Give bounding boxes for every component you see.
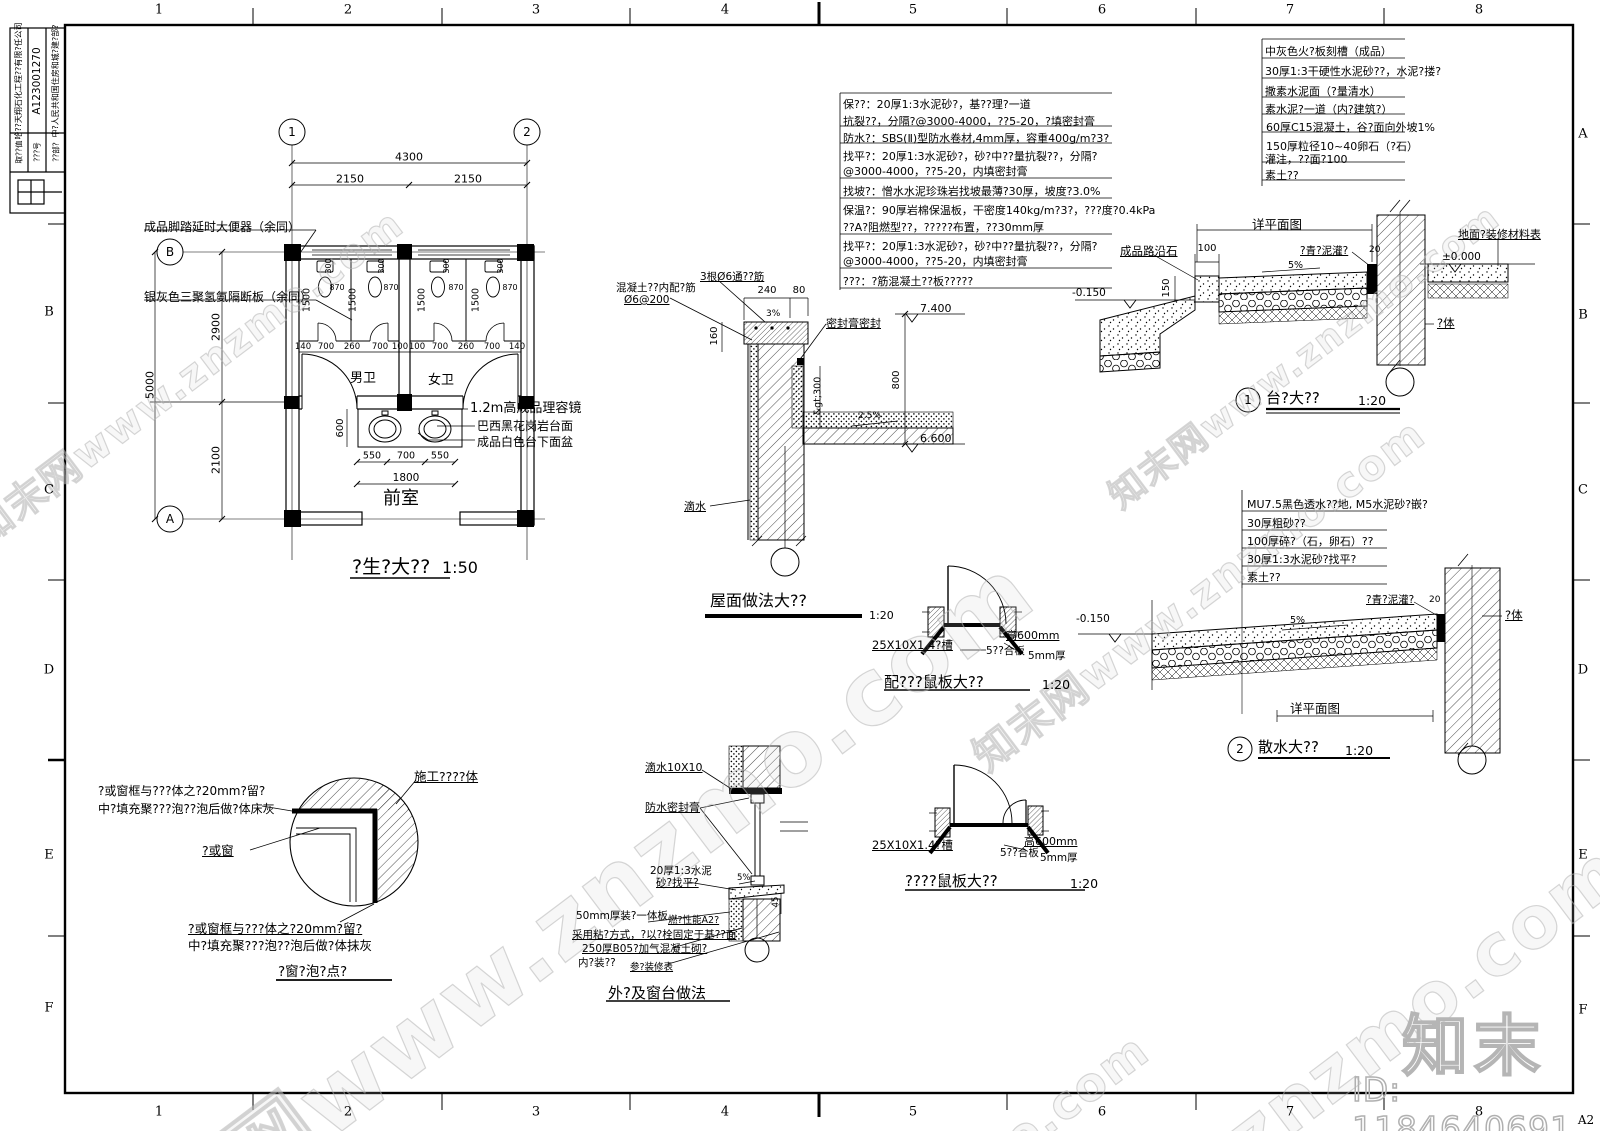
roof-slab-note2: Ø6@200 [624,295,670,306]
dim-260-a: 260 [344,343,360,352]
dim-2150-a: 2150 [336,174,364,185]
dim-2100: 2100 [211,446,222,474]
col-3-bot: 3 [532,1106,540,1119]
step-joint: ?青?泥灌? [1300,246,1348,257]
rat2-ply: 5??合板 [1000,848,1039,859]
col-6-bot: 6 [1098,1106,1106,1119]
roofnote-11: ???：?筋混凝土??板????? [843,276,973,287]
roof-sealant: 密封膏密封 [826,318,881,329]
row-F-left: F [44,1002,53,1015]
apron-title: 散水大?? [1258,740,1319,755]
apron-note-5: 素土?? [1247,572,1281,583]
stepnote-8: 素土?? [1265,170,1299,181]
row-C-left: C [44,484,54,497]
dim-700-a: 700 [318,343,334,352]
col-1-bot: 1 [155,1106,163,1119]
dim-140-b: 140 [509,343,525,352]
col-2-top: 2 [344,4,352,17]
apron-wall: ?体 [1505,610,1523,622]
step-dim-150: 150 [1162,278,1172,297]
roofnote-5: @3000-4000，??5-20，内填密封膏 [843,166,1028,177]
roof-dim-800: 800 [892,370,902,389]
col-1-top: 1 [155,4,163,17]
sill-dim-45: 45 [772,897,781,908]
row-C-right: C [1578,484,1588,497]
stepnote-7: 灌注，??面?100 [1265,154,1348,165]
dim-700-e: 700 [397,451,415,461]
col-7-top: 7 [1286,4,1294,17]
step-dim-100: 100 [1197,244,1216,254]
grid-bubble-A: A [166,513,174,525]
step-scale: 1:20 [1358,395,1386,408]
apron-note-4: 30厚1:3水泥砂?找平? [1247,554,1356,565]
roof-drip: 滴水 [684,501,706,512]
dim-1500-c: 1500 [417,288,427,312]
roofnote-7: 保温?：90厚岩棉保温板，干密度140kg/m?3?，???度?0.4kPa [843,205,1155,216]
apron-num: 2 [1236,743,1244,755]
dim-550-b: 550 [431,451,449,461]
roofnote-10: @3000-4000，??5-20，内填密封膏 [843,256,1028,267]
stepnote-5: 60厚C15混凝土，谷?面向外坡1% [1266,122,1435,133]
step-joint-20: 20 [1369,246,1380,255]
dim-2150-b: 2150 [454,174,482,185]
step-slope: 5% [1288,261,1303,271]
rat2-channel: 25X10X1.4?槽 [872,840,953,852]
roofnote-9: 找平?：20厚1:3水泥砂?，砂?中??量抗裂??，分隔? [843,241,1097,252]
apron-joint: ?青?泥灌? [1366,595,1414,606]
col-4-bot: 4 [721,1106,729,1119]
room-female: 女卫 [428,374,454,387]
dim-4300: 4300 [395,152,423,163]
step-curb: 成品路沿石 [1120,246,1178,258]
note-partition: 银灰色三聚氢氨隔断板（余同） [144,291,312,303]
sill-fire: 燃?性能A2? [668,916,719,926]
dim-300-d: 300 [497,258,505,273]
plan-scale: 1:50 [442,560,478,576]
dim-700-d: 700 [484,343,500,352]
dim-2900: 2900 [211,313,222,341]
apron-note-1: MU7.5黑色透水??地, M5水泥砂?嵌? [1247,499,1428,510]
dim-5000: 5000 [145,371,156,399]
roof-level-6600: 6.600 [920,433,952,444]
dim-550-a: 550 [363,451,381,461]
roof-slope-25: 2.5% [858,412,881,421]
dim-700-c: 700 [432,343,448,352]
rat2-scale: 1:20 [1070,878,1098,891]
stepnote-4: 素水泥?一道（内?建筑?） [1265,104,1393,115]
roof-title: 屋面做法大?? [710,593,807,609]
col-6-top: 6 [1098,4,1106,17]
row-D-left: D [44,664,54,677]
row-B-left: B [44,306,54,319]
sill-drip: 滴水10X10 [645,762,703,773]
rat1-ply: 5??合板 [986,646,1025,657]
row-F-right: F [1578,1004,1587,1017]
drawing-sheet: 知末网www.znzmo.com知末网www.znzmo.com知末网www.z… [0,0,1600,1131]
step-title: 台?大?? [1266,391,1320,406]
corner-window: ?或窗 [202,845,234,858]
apron-joint-20: 20 [1429,596,1440,605]
room-lobby: 前室 [383,490,419,508]
corner-wall: 施工????体 [414,771,478,784]
roofnote-8: ??A?阻燃型??，?????布置，??30mm厚 [843,222,1044,233]
row-E-left: E [44,849,54,862]
dim-140-a: 140 [295,343,311,352]
col-7-bot: 7 [1286,1106,1294,1119]
roof-scale: 1:20 [869,610,894,621]
apron-note-2: 30厚粗砂?? [1247,518,1306,529]
row-A-right: A [1578,128,1587,141]
dim-870-d: 870 [502,284,517,292]
dim-100-b: 100 [409,343,425,352]
rat1-title: 配???鼠板大?? [884,675,984,690]
dim-600: 600 [336,418,346,437]
col-3-top: 3 [532,4,540,17]
apron-scale: 1:20 [1345,745,1373,758]
corner-top-2: 中?填充聚???泡??泡后做?体床灰 [98,803,275,815]
sill-inner: 内?装?? [578,958,616,969]
grid-bubble-2: 2 [523,126,531,138]
sill-fix: 采用粘?方式，?以?栓固定于基??面 [572,930,736,941]
step-wall: ?体 [1437,318,1455,330]
stepnote-3: 撒素水泥面（?量清水） [1265,86,1381,97]
corner-top-1: ?或窗框与???体之?20mm?留? [98,785,265,797]
dim-700-b: 700 [372,343,388,352]
roofnote-4: 找平?：20厚1:3水泥砂?，砂?中??量抗裂??，分隔? [843,151,1097,162]
roof-rebar: 3根Ø6通??筋 [700,272,764,283]
dim-1800: 1800 [393,473,420,484]
titleblock-label-2: ???号 [33,142,41,161]
grid-bubble-1: 1 [288,126,296,138]
dim-300-b: 300 [378,258,386,273]
grid-bubble-B: B [166,246,174,258]
sill-mortar-2: 砂?找平? [656,878,699,889]
dim-870-c: 870 [448,284,463,292]
step-plan-ref: 详平面图 [1252,219,1302,232]
titleblock-number: A123001270 [32,47,43,114]
col-2-bot: 2 [344,1106,352,1119]
corner-bot-1: ?或窗框与???体之?20mm?留? [188,923,362,936]
apron-slope: 5% [1290,616,1305,626]
row-E-right: E [1578,849,1588,862]
titleblock-ministry: 中?人民共和国住房和城?建?部? [52,25,60,138]
col-8-top: 8 [1475,4,1483,17]
roof-dim-240: 240 [757,286,776,296]
corner-title: ?窗?泡?点? [278,966,347,980]
sill-board: 50mm厚装?一体板 [576,911,668,922]
dim-300-a: 300 [325,258,333,273]
sill-block: 250厚B05?加气混凝土砌? [582,944,707,955]
step-floor-note: 地面?装修材料表 [1458,229,1541,240]
roofnote-6: 找坡?：憎水水泥珍珠岩找坡最薄?30厚，坡度?3.0% [843,186,1100,197]
rat2-thick: 5mm厚 [1040,853,1078,864]
stepnote-2: 30厚1:3干硬性水泥砂??，水泥?搂? [1265,66,1441,77]
dim-870-a: 870 [329,284,344,292]
step-lvl-minus: -0.150 [1072,288,1106,299]
sill-sealant: 防水密封膏 [645,802,700,813]
note-mirror: 1.2m高成品理容镜 [470,402,581,415]
rat2-height: 高600mm [1024,836,1077,847]
plan-title: ?生?大?? [352,558,430,577]
row-D-right: D [1578,664,1588,677]
sill-slope: 5% [737,874,751,883]
titleblock-label-3: ??部? [52,142,60,161]
roofnote-3: 防水?：SBS(Ⅱ)型防水卷材,4mm厚，容重400g/m?3? [843,133,1109,144]
rat1-height: 高600mm [1006,630,1059,641]
roofnote-1: 保??：20厚1:3水泥砂?，基??理?一道 [843,99,1031,110]
roof-slab-note1: 混凝土??内配?筋 [616,283,696,294]
step-lvl-zero: ±0.000 [1442,252,1481,263]
col-5-bot: 5 [909,1106,917,1119]
dim-1500-b: 1500 [348,288,358,312]
sill-ref: 参?装修表 [630,963,673,973]
dim-260-b: 260 [458,343,474,352]
rat1-thick: 5mm厚 [1028,651,1066,662]
col-4-top: 4 [721,4,729,17]
apron-plan-ref: 详平面图 [1290,703,1340,716]
apron-note-3: 100厚碎?（石，卵石）?? [1247,536,1374,547]
titleblock-label-1: 取??值 [15,141,23,164]
roof-dim-80: 80 [793,286,806,296]
sill-mortar-1: 20厚1:3水泥 [650,866,712,877]
step-num: 1 [1244,394,1252,406]
room-male: 男卫 [350,372,376,385]
dim-1500-d: 1500 [471,288,481,312]
annotation-layer: 1234567812345678BCDEFABCDEFA2哈??天翔石化工程??… [0,0,1600,1131]
roofnote-2: 抗裂??，分隔?@3000-4000，??5-20，?填密封膏 [843,116,1095,127]
stepnote-6: 150厚粒径10~40卵石（?石） [1266,141,1418,152]
titleblock-company: 哈??天翔石化工程??有限?任公司 [15,22,23,139]
dim-300-c: 300 [443,258,451,273]
stepnote-1: 中灰色火?板刻槽（成品） [1265,46,1392,57]
corner-bot-2: 中?填充聚???泡??泡后做?体抹灰 [188,940,372,953]
dim-870-b: 870 [383,284,398,292]
roof-slope-3: 3% [766,310,780,319]
roof-dim-160: 160 [710,326,720,345]
dim-100-a: 100 [392,343,408,352]
rat1-scale: 1:20 [1042,679,1070,692]
rat2-title: ????鼠板大?? [905,874,998,889]
col-5-top: 5 [909,4,917,17]
row-B-right: B [1578,309,1588,322]
apron-lvl: -0.150 [1076,614,1110,625]
brand-id: ID: 1184640691 [1352,1070,1600,1131]
sill-title: 外?及窗台做法 [608,986,706,1001]
roof-level-7400: 7.400 [920,303,952,314]
roof-dim-300: &gt;300 [813,377,823,416]
note-toilet: 成品脚踏延时大便器（余同） [144,221,300,233]
note-basin: 成品白色台下面盆 [477,436,573,448]
note-granite: 巴西黑花岗岩台面 [477,420,573,432]
rat1-channel: 25X10X1.4?槽 [872,640,953,652]
